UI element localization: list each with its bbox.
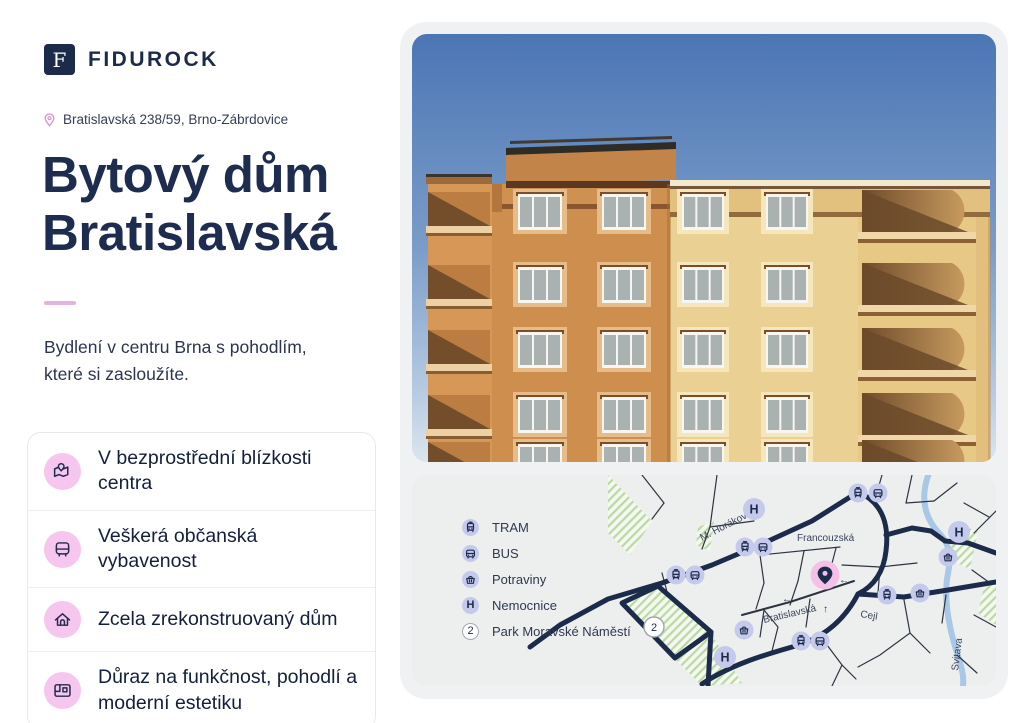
tagline: Bydlení v centru Brna s pohodlím, které … (44, 334, 307, 388)
map-bus-stop-icon (754, 538, 773, 557)
feature-label: Zcela zrekonstruovaný dům (98, 607, 338, 632)
feature-item-centre: V bezprostřední blízkosti centra (28, 433, 375, 510)
oneway-arrow: ← (782, 594, 792, 605)
street-label-francouzska: Francouzská (797, 533, 855, 544)
map-grocery-icon (911, 584, 930, 603)
map-bus-stop-icon (869, 484, 888, 503)
svg-text:H: H (720, 650, 729, 664)
grocery-basket-icon (462, 571, 479, 588)
hospital-icon: H (462, 597, 479, 614)
street-label-cejl: Cejl (860, 609, 879, 623)
location-pin-icon (44, 113, 55, 127)
map-park-number-icon: 2 (644, 617, 664, 637)
map-bus-stop-icon (686, 566, 705, 585)
svg-text:H: H (954, 525, 963, 539)
legend-item-tram: TRAM (462, 519, 631, 536)
svg-text:H: H (749, 502, 758, 516)
oneway-arrow: ↑ (823, 604, 828, 615)
map-tram-stop-icon (792, 632, 811, 651)
park-number-icon: 2 (462, 623, 479, 640)
map-tram-stop-icon (878, 586, 897, 605)
page-title-line2: Bratislavská (42, 204, 337, 262)
feature-label: Důraz na funkčnost, pohodlí a moderní es… (98, 665, 359, 716)
media-panel: M. Horákové Francouzská Bratislavská Cej… (400, 22, 1008, 699)
tram-icon (462, 519, 479, 536)
map-tram-stop-icon (849, 484, 868, 503)
svg-text:2: 2 (651, 622, 657, 634)
feature-list: V bezprostřední blízkosti centra Veškerá… (27, 432, 376, 723)
feature-item-design: Důraz na funkčnost, pohodlí a moderní es… (28, 651, 375, 723)
blueprint-icon (44, 672, 81, 709)
bus-icon (462, 545, 479, 562)
map-tram-stop-icon (736, 538, 755, 557)
map-location-icon (44, 453, 81, 490)
feature-label: Veškerá občanská vybavenost (98, 524, 359, 575)
brand-logo-icon: F (44, 44, 75, 75)
oneway-arrow: ← (839, 575, 849, 586)
map-legend: TRAM BUS Potraviny H Nemocnice (462, 519, 631, 640)
map-tram-stop-icon (667, 566, 686, 585)
feature-item-amenities: Veškerá občanská vybavenost (28, 510, 375, 588)
bus-icon (44, 531, 81, 568)
page: F FIDUROCK Bratislavská 238/59, Brno-Záb… (0, 0, 1024, 723)
map-bus-stop-icon (811, 632, 830, 651)
page-title: Bytový dům Bratislavská (42, 146, 337, 262)
page-title-line1: Bytový dům (42, 146, 337, 204)
legend-item-park: 2 Park Moravské Náměstí (462, 623, 631, 640)
brand-name: FIDUROCK (88, 48, 219, 72)
map-hospital-icon: H (714, 646, 736, 668)
location-map: M. Horákové Francouzská Bratislavská Cej… (412, 475, 996, 686)
accent-divider (44, 301, 76, 305)
tagline-line2: které si zasloužíte. (44, 361, 307, 388)
legend-item-bus: BUS (462, 545, 631, 562)
tagline-line1: Bydlení v centru Brna s pohodlím, (44, 334, 307, 361)
address-text: Bratislavská 238/59, Brno-Zábrdovice (63, 112, 288, 127)
brand: F FIDUROCK (44, 44, 219, 75)
legend-item-potraviny: Potraviny (462, 571, 631, 588)
feature-label: V bezprostřední blízkosti centra (98, 446, 359, 497)
map-grocery-icon (735, 621, 754, 640)
building-photo (412, 34, 996, 462)
map-property-pin (811, 561, 840, 590)
map-hospital-icon: H (743, 498, 765, 520)
map-hospital-icon: H (948, 521, 970, 543)
feature-item-renovated: Zcela zrekonstruovaný dům (28, 587, 375, 651)
home-icon (44, 601, 81, 638)
legend-item-nemocnice: H Nemocnice (462, 597, 631, 614)
address-line: Bratislavská 238/59, Brno-Zábrdovice (44, 112, 288, 127)
map-grocery-icon (939, 548, 958, 567)
building-illustration (412, 34, 996, 462)
